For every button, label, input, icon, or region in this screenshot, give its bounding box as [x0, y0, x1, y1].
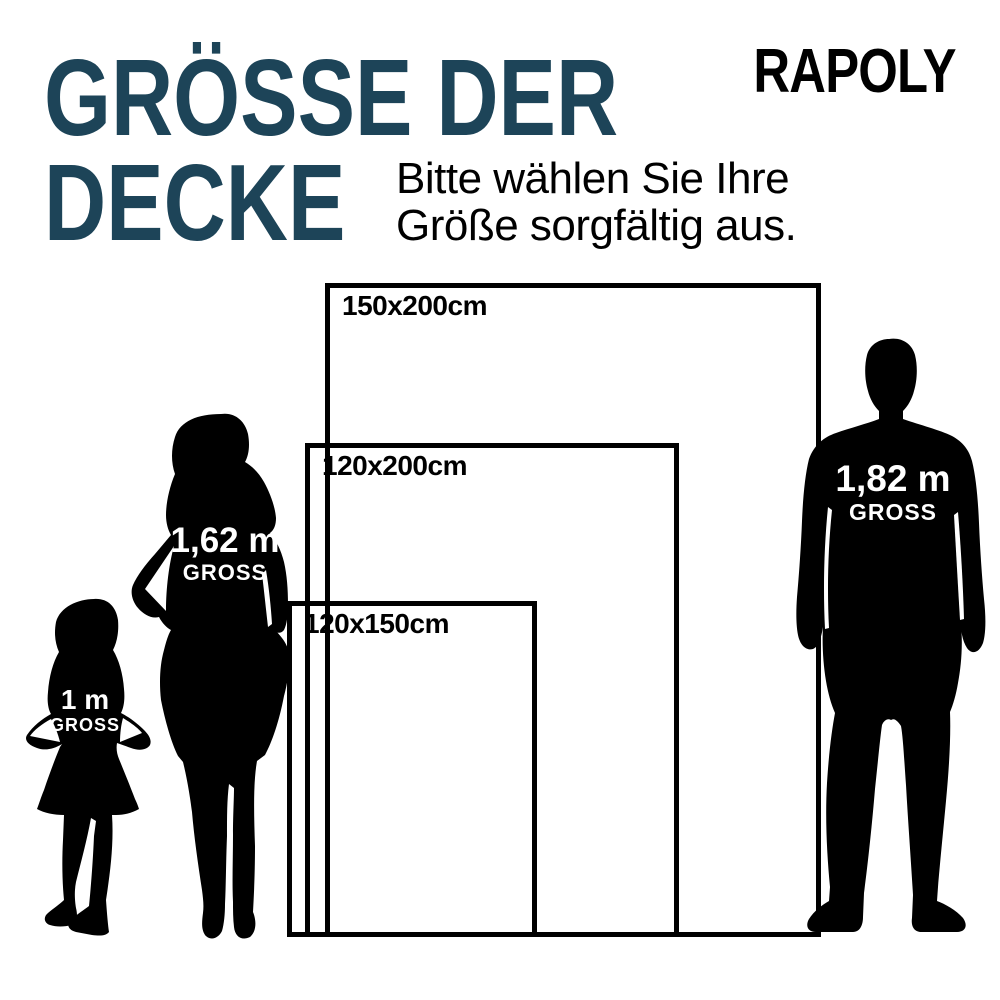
man-silhouette-body	[796, 339, 985, 932]
size-box-label: 120x150cm	[304, 608, 449, 640]
subtitle-line2: Größe sorgfältig aus.	[396, 202, 796, 249]
page-title-line1: GRÖSSE DER	[44, 46, 618, 151]
height-unit: GROSS	[165, 561, 285, 585]
size-box-120x150: 120x150cm	[287, 601, 537, 937]
height-value: 1,62 m	[165, 522, 285, 561]
woman-silhouette-body	[132, 414, 289, 939]
size-box-label: 120x200cm	[322, 450, 467, 482]
height-value: 1 m	[25, 685, 145, 716]
size-box-label: 150x200cm	[342, 290, 487, 322]
subtitle-line1: Bitte wählen Sie Ihre	[396, 155, 796, 202]
woman-height-label: 1,62 m GROSS	[165, 522, 285, 585]
brand-logo: RAPOLY	[754, 36, 956, 107]
height-unit: GROSS	[25, 716, 145, 736]
woman-silhouette-icon	[128, 412, 308, 940]
size-guide-infographic: GRÖSSE DER DECKE RAPOLY Bitte wählen Sie…	[0, 0, 1000, 1000]
subtitle: Bitte wählen Sie Ihre Größe sorgfältig a…	[396, 155, 796, 249]
height-value: 1,82 m	[833, 459, 953, 500]
height-unit: GROSS	[833, 500, 953, 525]
man-height-label: 1,82 m GROSS	[833, 459, 953, 525]
girl-height-label: 1 m GROSS	[25, 685, 145, 736]
man-silhouette-icon	[788, 337, 993, 942]
